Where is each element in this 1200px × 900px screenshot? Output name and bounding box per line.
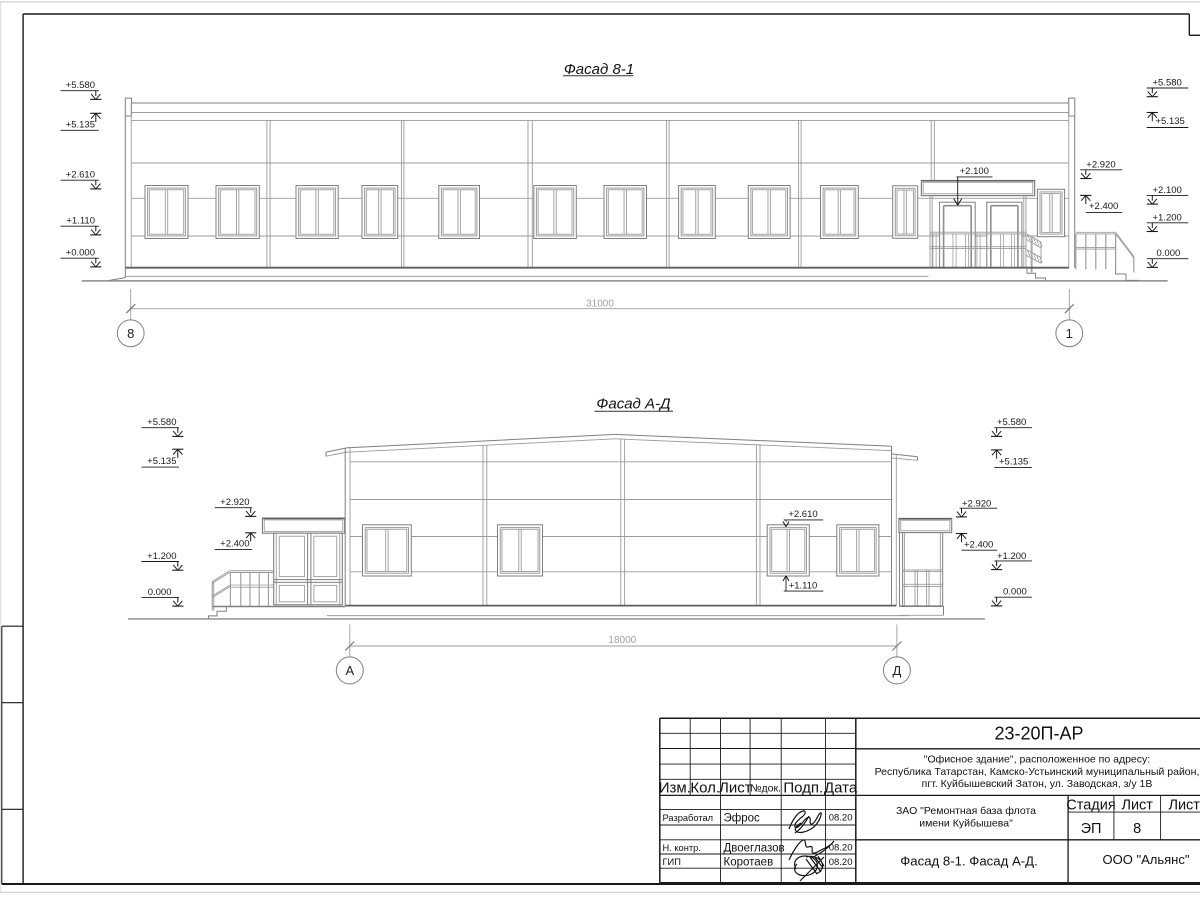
svg-text:0.000: 0.000 [1157,248,1181,259]
svg-text:0.000: 0.000 [148,587,172,598]
svg-text:+2.400: +2.400 [220,539,249,550]
svg-text:0.000: 0.000 [1003,587,1027,598]
svg-text:23-20П-АР: 23-20П-АР [995,723,1084,743]
svg-text:+2.400: +2.400 [964,540,993,551]
svg-text:+5.135: +5.135 [66,119,95,130]
svg-text:+2.920: +2.920 [962,498,991,509]
svg-text:Стадия: Стадия [1066,797,1115,813]
svg-text:+5.580: +5.580 [997,417,1026,428]
svg-text:+2.400: +2.400 [1089,201,1118,212]
svg-text:Фасад А-Д: Фасад А-Д [596,396,671,413]
svg-text:ООО "Альянс": ООО "Альянс" [1103,852,1190,867]
svg-text:1: 1 [1066,326,1073,341]
svg-text:+2.920: +2.920 [1086,159,1115,170]
svg-text:+1.200: +1.200 [997,551,1026,562]
svg-text:+2.100: +2.100 [960,166,989,177]
svg-text:Лист: Лист [719,780,752,797]
svg-text:Изм.: Изм. [659,780,691,797]
svg-text:+2.920: +2.920 [220,497,249,508]
svg-text:+2.610: +2.610 [66,170,95,181]
svg-text:Д: Д [892,663,901,678]
svg-text:Дата: Дата [824,780,858,797]
svg-text:Лист: Лист [1121,797,1153,813]
svg-text:А: А [345,663,354,678]
svg-text:Листов: Листов [1168,797,1200,813]
svg-text:Подп.: Подп. [783,780,823,797]
svg-text:08.20: 08.20 [829,857,853,868]
svg-text:ЭП: ЭП [1081,821,1102,837]
svg-text:+1.110: +1.110 [66,216,95,227]
svg-text:Двоеглазов: Двоеглазов [724,842,785,854]
svg-text:Разработал: Разработал [663,813,714,823]
svg-text:08.20: 08.20 [829,813,853,824]
svg-text:Фасад 8-1: Фасад 8-1 [564,61,634,78]
svg-text:8: 8 [127,326,134,341]
svg-text:+1.200: +1.200 [1153,212,1182,223]
svg-text:ГИП: ГИП [663,857,681,867]
svg-text:ЗАО "Ремонтная база флота: ЗАО "Ремонтная база флота [896,805,1036,817]
svg-text:Кол.: Кол. [690,780,720,797]
svg-text:Республика Татарстан, Камско-У: Республика Татарстан, Камско-Устьинский … [875,766,1200,778]
svg-text:08.20: 08.20 [829,843,853,854]
svg-text:имени Куйбышева": имени Куйбышева" [919,817,1013,829]
svg-text:Эфрос: Эфрос [724,813,761,825]
svg-text:31000: 31000 [586,298,614,309]
svg-text:пгт. Куйбышевский Затон, ул. З: пгт. Куйбышевский Затон, ул. Заводская, … [922,778,1153,790]
svg-text:+1.200: +1.200 [147,551,176,562]
svg-text:Н. контр.: Н. контр. [663,843,701,853]
svg-text:+5.580: +5.580 [147,417,176,428]
svg-text:"Офисное здание", расположенно: "Офисное здание", расположенное по адрес… [924,754,1150,766]
svg-text:№док.: №док. [750,783,781,795]
svg-text:+5.580: +5.580 [1153,78,1182,89]
svg-text:Коротаев: Коротаев [724,856,774,868]
svg-text:+5.580: +5.580 [66,80,95,91]
svg-text:8: 8 [1133,821,1141,837]
svg-text:+5.135: +5.135 [1156,116,1185,127]
svg-text:+1.110: +1.110 [789,581,818,592]
svg-text:+2.610: +2.610 [788,509,817,520]
svg-text:+5.135: +5.135 [999,456,1028,467]
svg-text:Фасад 8-1. Фасад А-Д.: Фасад 8-1. Фасад А-Д. [900,853,1037,868]
svg-text:+0.000: +0.000 [66,248,95,259]
svg-text:18000: 18000 [608,635,636,646]
svg-text:+2.100: +2.100 [1153,185,1182,196]
svg-text:+5.135: +5.135 [147,456,176,467]
